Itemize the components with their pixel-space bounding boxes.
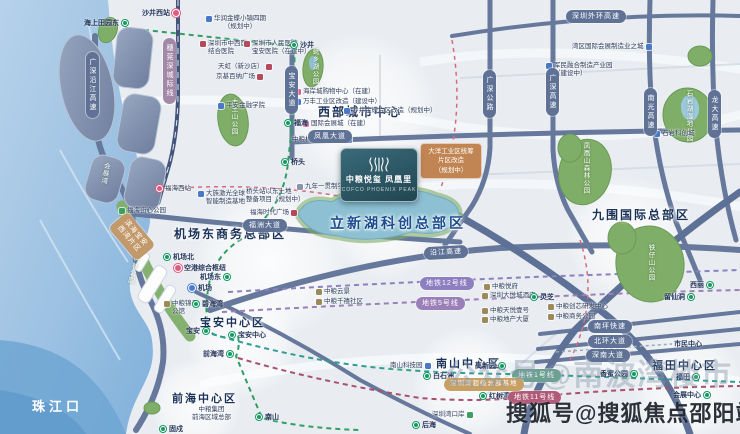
poi-huarun-jindie-town: 华润金蝶小镇四期 （规划中） [206,15,266,32]
poi-cofco-property-tower: 中粮地产大厦 [482,316,529,324]
project-card-cofco-yuexi: 中粮悦玺 凤凰里 COFCO PHOENIX PEAK [340,148,418,202]
industry-icon [646,44,652,50]
poi-tianhong-mall: 天虹（新沙店） [218,63,272,71]
pill-longda-expwy: 龙大高速 [708,90,721,138]
poi-label: 桥头站以东土地 整备项目（规划中） [246,188,305,205]
poi-shajing-jindie-renewal: 沙井金蝶片区改造（规划中） [344,107,437,115]
station-label: 沙井西站 [142,8,170,18]
station-liuxiandong: 留仙洞 [664,292,695,302]
poi-label: 南山科技园 [390,362,423,370]
poi-label: 深圳湾口岸 [432,411,465,419]
poi-intl-convention-city: 国际会展城（在建） [303,120,370,128]
poi-dayang-renewal-card: 大洋工业区统筹 片区改造 （规划中） [420,143,482,179]
poi-jingji-baina-plaza: 京基百纳广场 [216,73,263,81]
poi-hans-laser-base: 大族激光全球 智能制造基地 [198,190,245,207]
station-bihaiwan: 碧海湾 [192,299,223,309]
poi-label: 中粮天悦壹号 [490,307,529,315]
cofco-building-icon [482,317,488,323]
poi-label: 中粮商务公园 [556,313,595,321]
poi-cofco-yuefu: 中粮悦府 [484,283,518,291]
metro-station-icon [281,158,289,166]
poi-tcm-hospital: 深圳市中西医 结合医院 [200,40,247,57]
station-label: 南山 [265,412,279,422]
rail-station-icon [174,264,182,272]
poi-fuhai-times-plaza: 福海时代广场 [250,209,297,217]
station-fuhai: 福海 [284,118,308,128]
school-icon [218,103,224,109]
watermark-faded: 公众号@南波湾楼市 [446,350,733,394]
poi-bay-manufacturing-city: 湾区国际会展制造业之城 [572,43,652,51]
poi-label: 国际会展城（在建） [311,120,370,128]
station-label: 宝安中心 [238,330,266,340]
metro-station-icon [192,300,200,308]
pill-nanping-expwy: 南坪快速 [588,320,632,333]
cofco-logo-icon [367,157,391,172]
poi-label: 平安金融学院 [226,102,265,110]
cofco-building-icon [548,304,554,310]
project-icon [344,108,350,114]
poi-qiaotou-east-land: 桥头站以东土地 整备项目（规划中） [246,188,305,205]
hospital-icon [200,41,206,47]
pill-metro-line-5: 地铁5号线 [416,297,465,310]
poi-wanfeng-renewal: 万丰工业区改造（建设中） [295,98,381,106]
station-label: 宝安 [186,326,200,336]
station-label: 西丽 [690,280,704,290]
watermark-sohu: 搜狐号@搜狐焦点邵阳站 [506,396,740,428]
metro-station-icon [687,293,695,301]
poi-label: 福海时代广场 [250,209,289,217]
poi-label: 华润金蝶小镇四期 （规划中） [214,15,266,32]
station-jichangdong: 机场东 [200,272,231,282]
station-nanshan: 南山 [255,412,279,422]
poi-shenzhen-bay-port: 深圳湾口岸 [432,411,473,419]
station-xili: 西丽 [690,280,714,290]
poi-label: 京基百纳广场 [216,73,255,81]
station-qiaotou: 桥头 [281,157,305,167]
project-card-subtitle: COFCO PHOENIX PEAK [342,187,417,193]
poi-pingan-finance-academy: 平安金融学院 [218,102,265,110]
poi-label: 万丰工业区改造（建设中） [303,98,381,106]
metro-station-icon [163,253,171,261]
poi-cofco-tianyue-no1: 中粮天悦壹号 [482,307,529,315]
poi-shiyan-tech-city: 石岩科创城 [654,130,695,138]
poi-cofco-qianxi-community: 中粮千禧社区 [316,298,363,306]
station-houhai: 后海 [412,420,436,430]
pill-beihuan-blvd: 北环大道 [588,335,632,348]
cofco-building-icon [316,289,322,295]
poi-label: 中粮地产大厦 [490,316,529,324]
pill-outer-ring-expwy: 深圳外环高速 [566,10,626,23]
poi-label: 中粮集团 前海区域总部 [192,406,231,423]
project-card-title: 中粮悦玺 凤凰里 [346,174,412,185]
rail-station-icon [172,9,180,17]
pill-guangshen-coastal-expwy: 广深沿江高速 [86,52,99,118]
poi-cofco-yunjing: 中粮云景 [316,288,350,296]
station-label: 机场东 [200,272,221,282]
metro-station-icon [121,19,129,27]
metro-station-icon [202,327,210,335]
project-icon [206,16,212,22]
poi-cofco-chuangxin-rd-center: 中粮创芯研发中心 [548,303,608,311]
cofco-building-icon [482,308,488,314]
poi-label: 中粮千禧社区 [324,298,363,306]
poi-label: 深圳市中西医 结合医院 [208,40,247,57]
pill-fuzhou-blvd: 福洲大道 [243,219,287,232]
station-shajing: 沙井 [290,40,314,50]
airport-station-icon [188,284,196,292]
poi-label: 中粮悦府 [492,283,518,291]
cofco-building-icon [548,314,554,320]
sea-label-pearl-river-estuary: 珠江口 [32,396,83,415]
metro-station-icon [284,119,292,127]
station-label: 海上田园东 [84,18,119,28]
label-civic-center: 市民中心 [674,339,702,349]
map-canvas: 西部城市中心 机场东商务总部区 立新湖科创总部区 九围国际总部区 宝安中心区 前… [0,0,740,434]
pill-fenghuang-blvd: 凤凰大道 [308,130,352,143]
metro-station-icon [223,273,231,281]
park-fenghuangshan: 凤凰山森林公园 [580,142,590,195]
industry-icon [198,191,204,197]
poi-label: 海岸城购物中心（在建） [303,88,375,96]
metro-station-icon [423,372,431,380]
station-label: 福海 [294,118,308,128]
station-label: 机场北 [173,252,194,262]
poi-label: 湾区国际会展制造业之城 [572,43,644,51]
poi-label: 中粮创芯研发中心 [556,303,608,311]
poi-label: 天虹（新沙店） [218,63,264,71]
poi-joy-city-hotel: 深圳大悦城酒店 [482,292,536,300]
poi-cofco-qianhai-hq: 中粮集团 前海区域总部 [192,406,231,423]
metro-station-icon [706,281,714,289]
station-label: 留仙洞 [664,292,685,302]
metro-station-icon [412,421,420,429]
cofco-building-icon [164,301,170,307]
poi-cofco-business-park: 中粮商务公园 [548,313,595,321]
district-lixin-lake-hq: 立新湖科创总部区 [330,213,466,233]
poi-nanshan-tech-park: 南山科技园 [390,362,431,370]
metro-station-icon [530,293,538,301]
poi-label: 石岩科创城 [662,130,695,138]
mall-icon [291,210,297,216]
station-lingzhi: 灵芝 [530,292,554,302]
station-shajing-west: 沙井西站 [142,8,180,18]
station-label: 灵芝 [540,292,554,302]
cofco-building-icon [316,299,322,305]
district-jiuwei-intl-hq: 九围国际总部区 [592,206,690,223]
park-tiezishan: 铁仔山公园 [645,244,655,282]
station-label: 沙井 [300,40,314,50]
pill-yanjiang-expwy: 沿江高速 [424,245,469,260]
pill-baoan-blvd: 宝安大道 [285,66,298,114]
station-label: 碧海湾 [202,299,223,309]
mall-icon [266,64,272,70]
station-label: 固戍 [169,424,183,434]
metro-station-icon [290,41,298,49]
mall-icon [257,74,263,80]
station-label: 市民中心 [674,339,702,349]
hotel-icon [482,293,488,299]
pill-guangshen-expwy: 广深高速 [546,68,559,116]
poi-fuhai-west-station: 福海西站 [156,185,191,193]
station-baoan-center: 宝安中心 [228,330,266,340]
poi-label: 大族激光全球 智能制造基地 [206,190,245,207]
metro-station-icon [159,425,167,433]
poi-label: 中粮云景 [324,288,350,296]
pill-suiwanshen-intercity-rail: 穗莞深城际线 [163,38,176,104]
station-label: 前海湾 [203,349,224,359]
station-gushu: 固戍 [159,424,183,434]
poi-coastal-city-mall: 海岸城购物中心（在建） [295,88,375,96]
station-haishangtianyuan-east: 海上田园东 [84,18,129,28]
station-jichang: 机场 [188,283,212,293]
hospital-icon [244,41,250,47]
pill-guangshen-highway: 广深公路 [483,70,496,118]
metro-station-icon [226,350,234,358]
poi-label: 沙井金蝶片区改造（规划中） [352,107,437,115]
pill-metro-line-12: 地铁12号线 [420,277,474,290]
station-qianhaiwan: 前海湾 [203,349,234,359]
metro-station-icon [255,413,263,421]
station-label: 后海 [422,420,436,430]
station-label: 桥头 [291,157,305,167]
station-jichangbei: 机场北 [163,252,194,262]
poi-label: 军民融合制造产业园 （建设中） [554,62,613,79]
poi-label: 福海西站 [165,185,191,193]
metro-station-icon [228,331,236,339]
poi-label: 深圳大悦城酒店 [490,292,536,300]
station-label: 机场 [198,283,212,293]
rail-station-icon [156,185,163,192]
district-qianhai-center: 前海中心区 [172,390,237,406]
pill-nanguang-expwy: 南光高速 [644,88,657,136]
cofco-building-icon [484,284,490,290]
port-icon [467,412,473,418]
station-baoan: 宝安 [186,326,210,336]
industry-icon [425,363,431,369]
poi-label: 福海街心公园 [127,207,166,215]
